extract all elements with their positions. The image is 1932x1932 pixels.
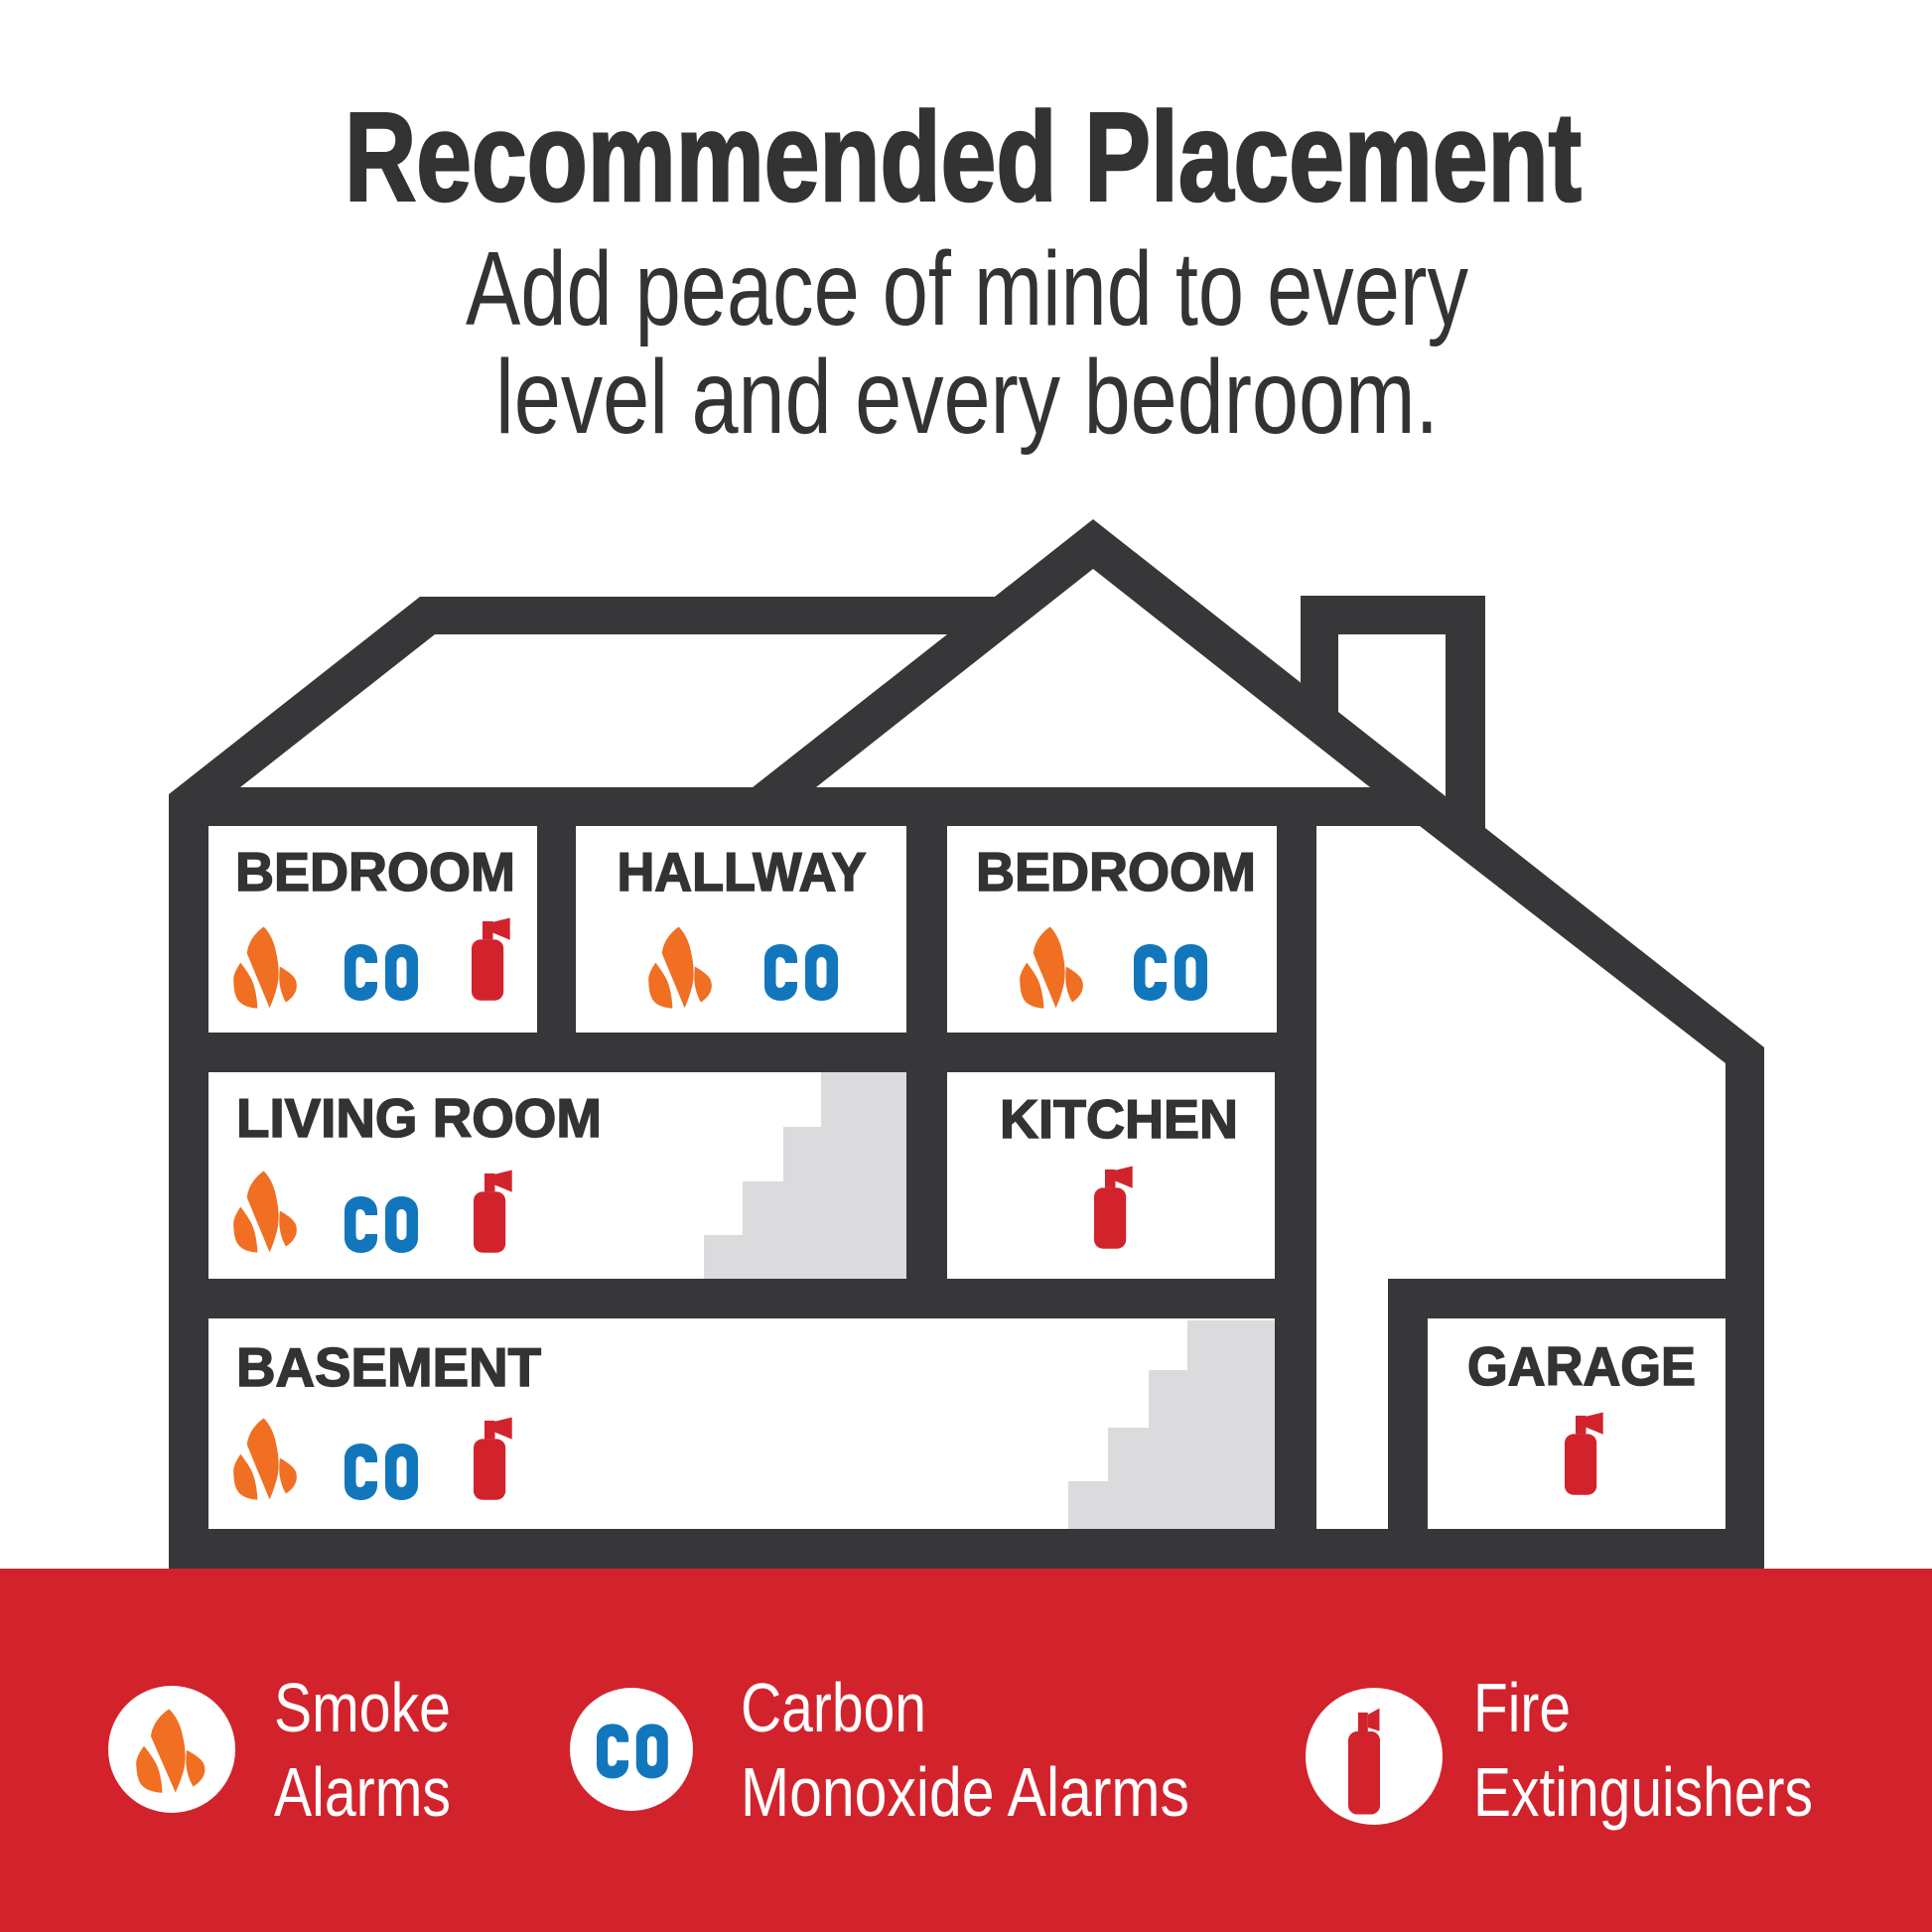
svg-text:Fire: Fire [1473,1669,1571,1746]
svg-text:Extinguishers: Extinguishers [1473,1753,1813,1831]
svg-text:Monoxide Alarms: Monoxide Alarms [741,1753,1189,1831]
svg-text:Add peace of mind to every: Add peace of mind to every [466,230,1468,347]
svg-text:BEDROOM: BEDROOM [235,841,515,902]
svg-text:HALLWAY: HALLWAY [618,841,867,902]
svg-text:Recommended Placement: Recommended Placement [345,86,1582,227]
svg-text:GARAGE: GARAGE [1467,1335,1696,1397]
svg-text:Carbon: Carbon [741,1669,926,1746]
svg-text:level and every bedroom.: level and every bedroom. [495,339,1439,456]
svg-text:KITCHEN: KITCHEN [1000,1088,1238,1150]
svg-text:BASEMENT: BASEMENT [236,1336,541,1398]
svg-text:Alarms: Alarms [274,1753,451,1831]
svg-text:Smoke: Smoke [274,1669,451,1746]
svg-text:BEDROOM: BEDROOM [976,841,1256,902]
svg-text:LIVING ROOM: LIVING ROOM [236,1087,602,1149]
